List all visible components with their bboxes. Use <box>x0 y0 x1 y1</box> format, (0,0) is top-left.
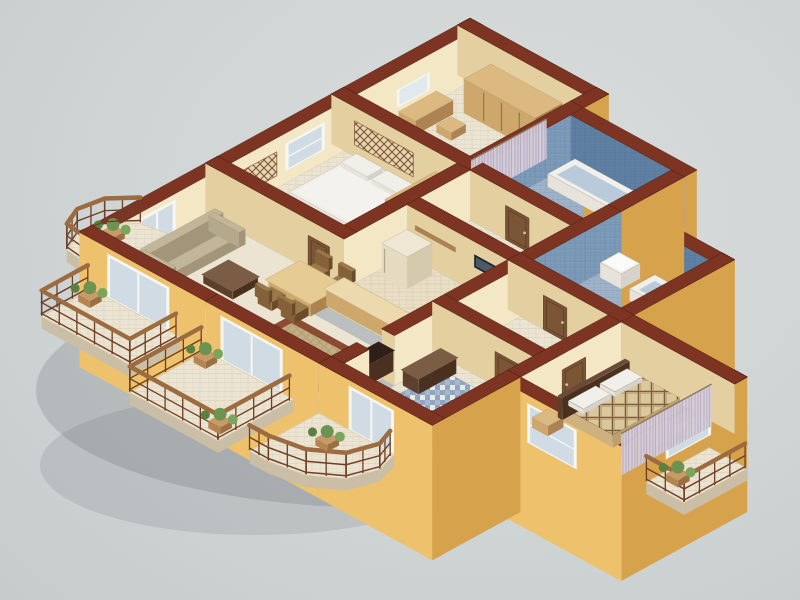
render-root <box>36 18 747 581</box>
render-viewport <box>0 0 800 600</box>
isometric-floor-plan-render <box>0 0 800 600</box>
